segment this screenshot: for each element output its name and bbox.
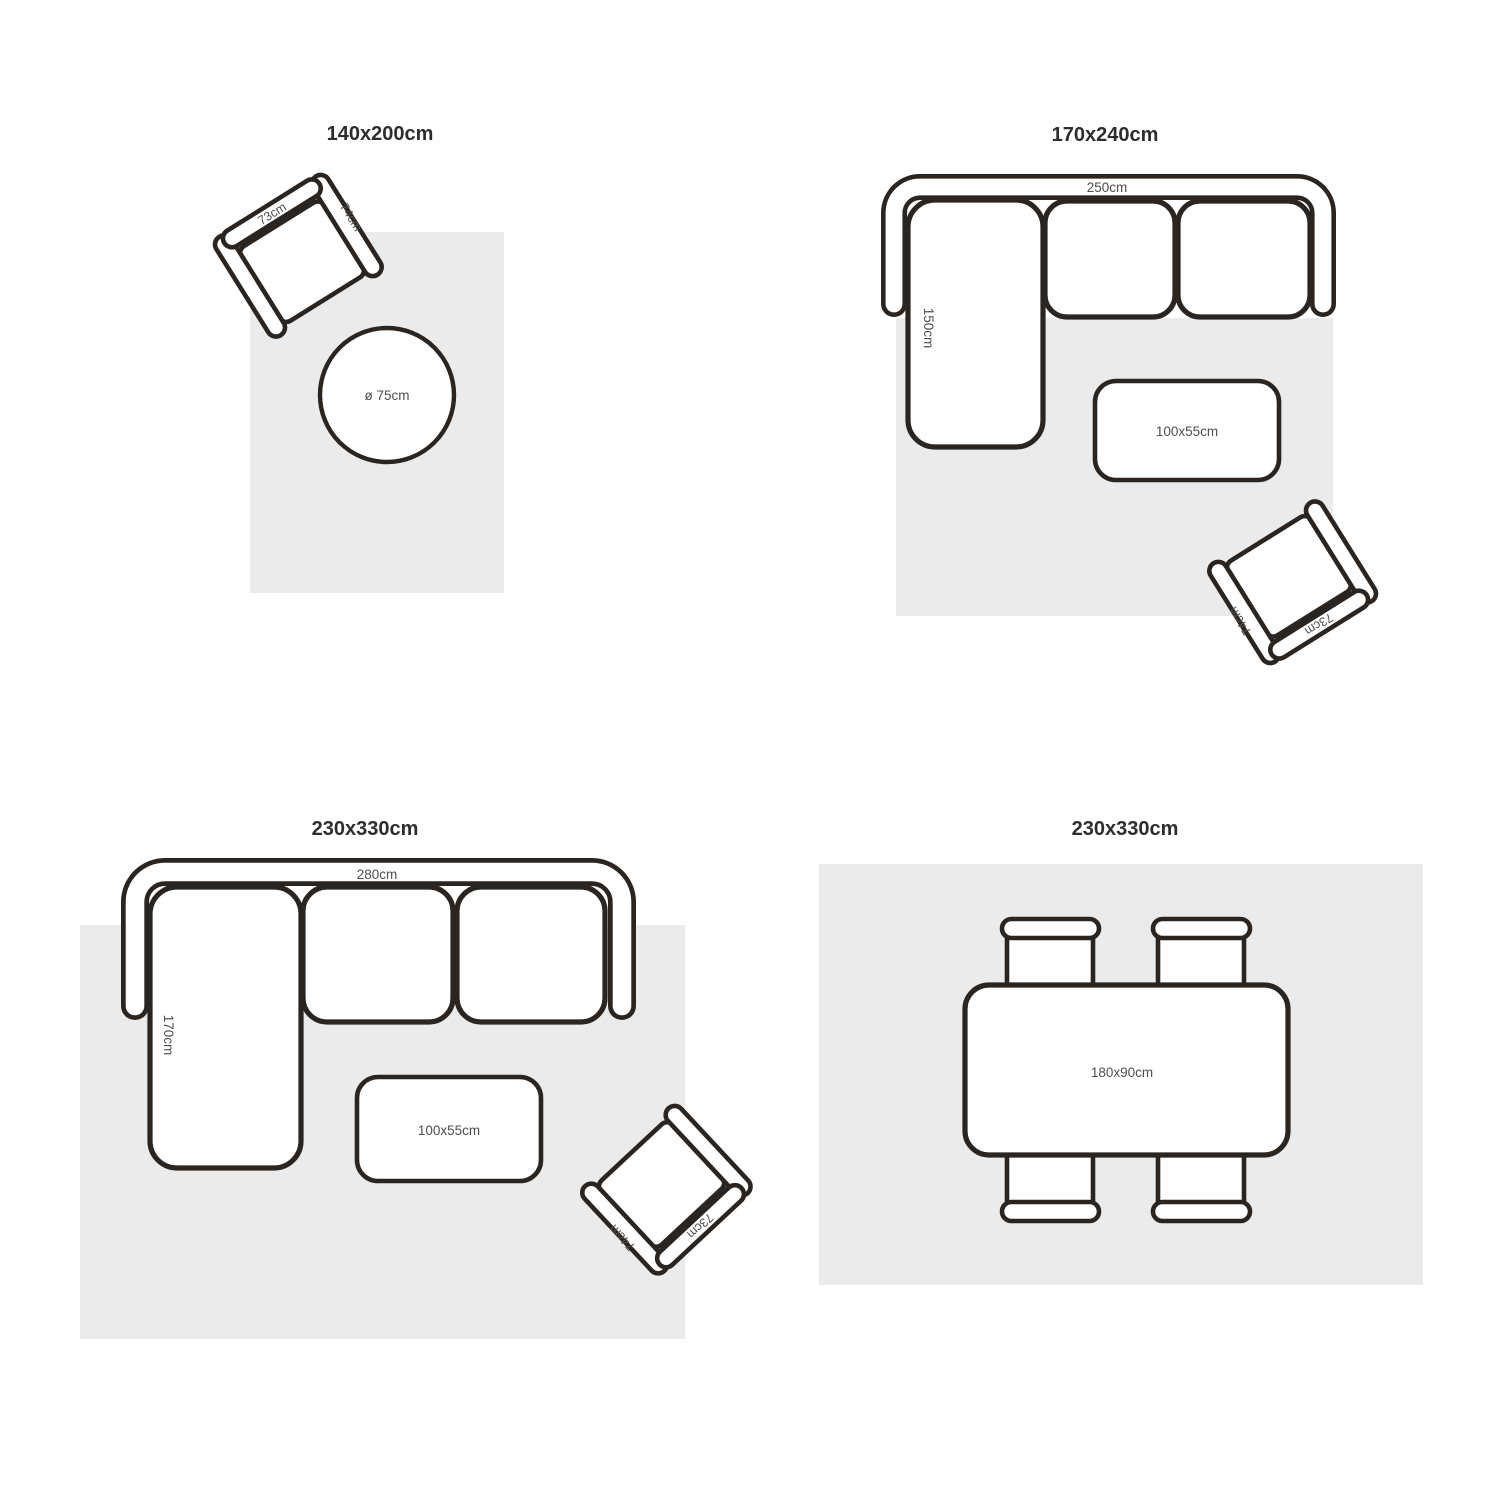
- panel-rug-230x330-dining: 230x330cm 180x90cm: [819, 818, 1423, 1285]
- sofa-chaise-depth-label: 150cm: [921, 308, 936, 349]
- dining-chair-backrest: [1002, 1202, 1099, 1221]
- dining-table-label: 180x90cm: [1091, 1065, 1153, 1080]
- panel-rug-170x240: 170x240cm 250cm 150cm 100x55cm 73cm 74cm: [894, 124, 1380, 670]
- rug-size-guide: 140x200cm 73cm 74cm ø 75cm 170x240cm 250…: [0, 0, 1500, 1500]
- coffee-table-label: 100x55cm: [1156, 424, 1218, 439]
- sofa-seat-cushion: [303, 887, 453, 1022]
- panel-title: 140x200cm: [327, 123, 434, 145]
- dining-chair-backrest: [1002, 919, 1099, 938]
- sofa-seat-cushion: [457, 887, 605, 1022]
- round-table-label: ø 75cm: [364, 388, 409, 403]
- coffee-table-label: 100x55cm: [418, 1123, 480, 1138]
- rug-size-diagram: 140x200cm 73cm 74cm ø 75cm 170x240cm 250…: [0, 0, 1500, 1500]
- panel-rug-140x200: 140x200cm 73cm 74cm ø 75cm: [211, 123, 504, 593]
- dining-chair-backrest: [1153, 1202, 1250, 1221]
- sofa-seat-cushion: [1045, 201, 1175, 317]
- sofa-width-label: 250cm: [1087, 180, 1128, 195]
- panel-title: 230x330cm: [1072, 818, 1179, 840]
- panel-title: 170x240cm: [1052, 124, 1159, 146]
- sofa-seat-cushion: [1178, 201, 1310, 317]
- panel-title: 230x330cm: [312, 818, 419, 840]
- sofa-chaise-depth-label: 170cm: [161, 1015, 176, 1056]
- panel-rug-230x330-living: 230x330cm 280cm 170cm 100x55cm 73cm 74cm: [80, 818, 755, 1339]
- sofa-width-label: 280cm: [357, 867, 398, 882]
- dining-chair-backrest: [1153, 919, 1250, 938]
